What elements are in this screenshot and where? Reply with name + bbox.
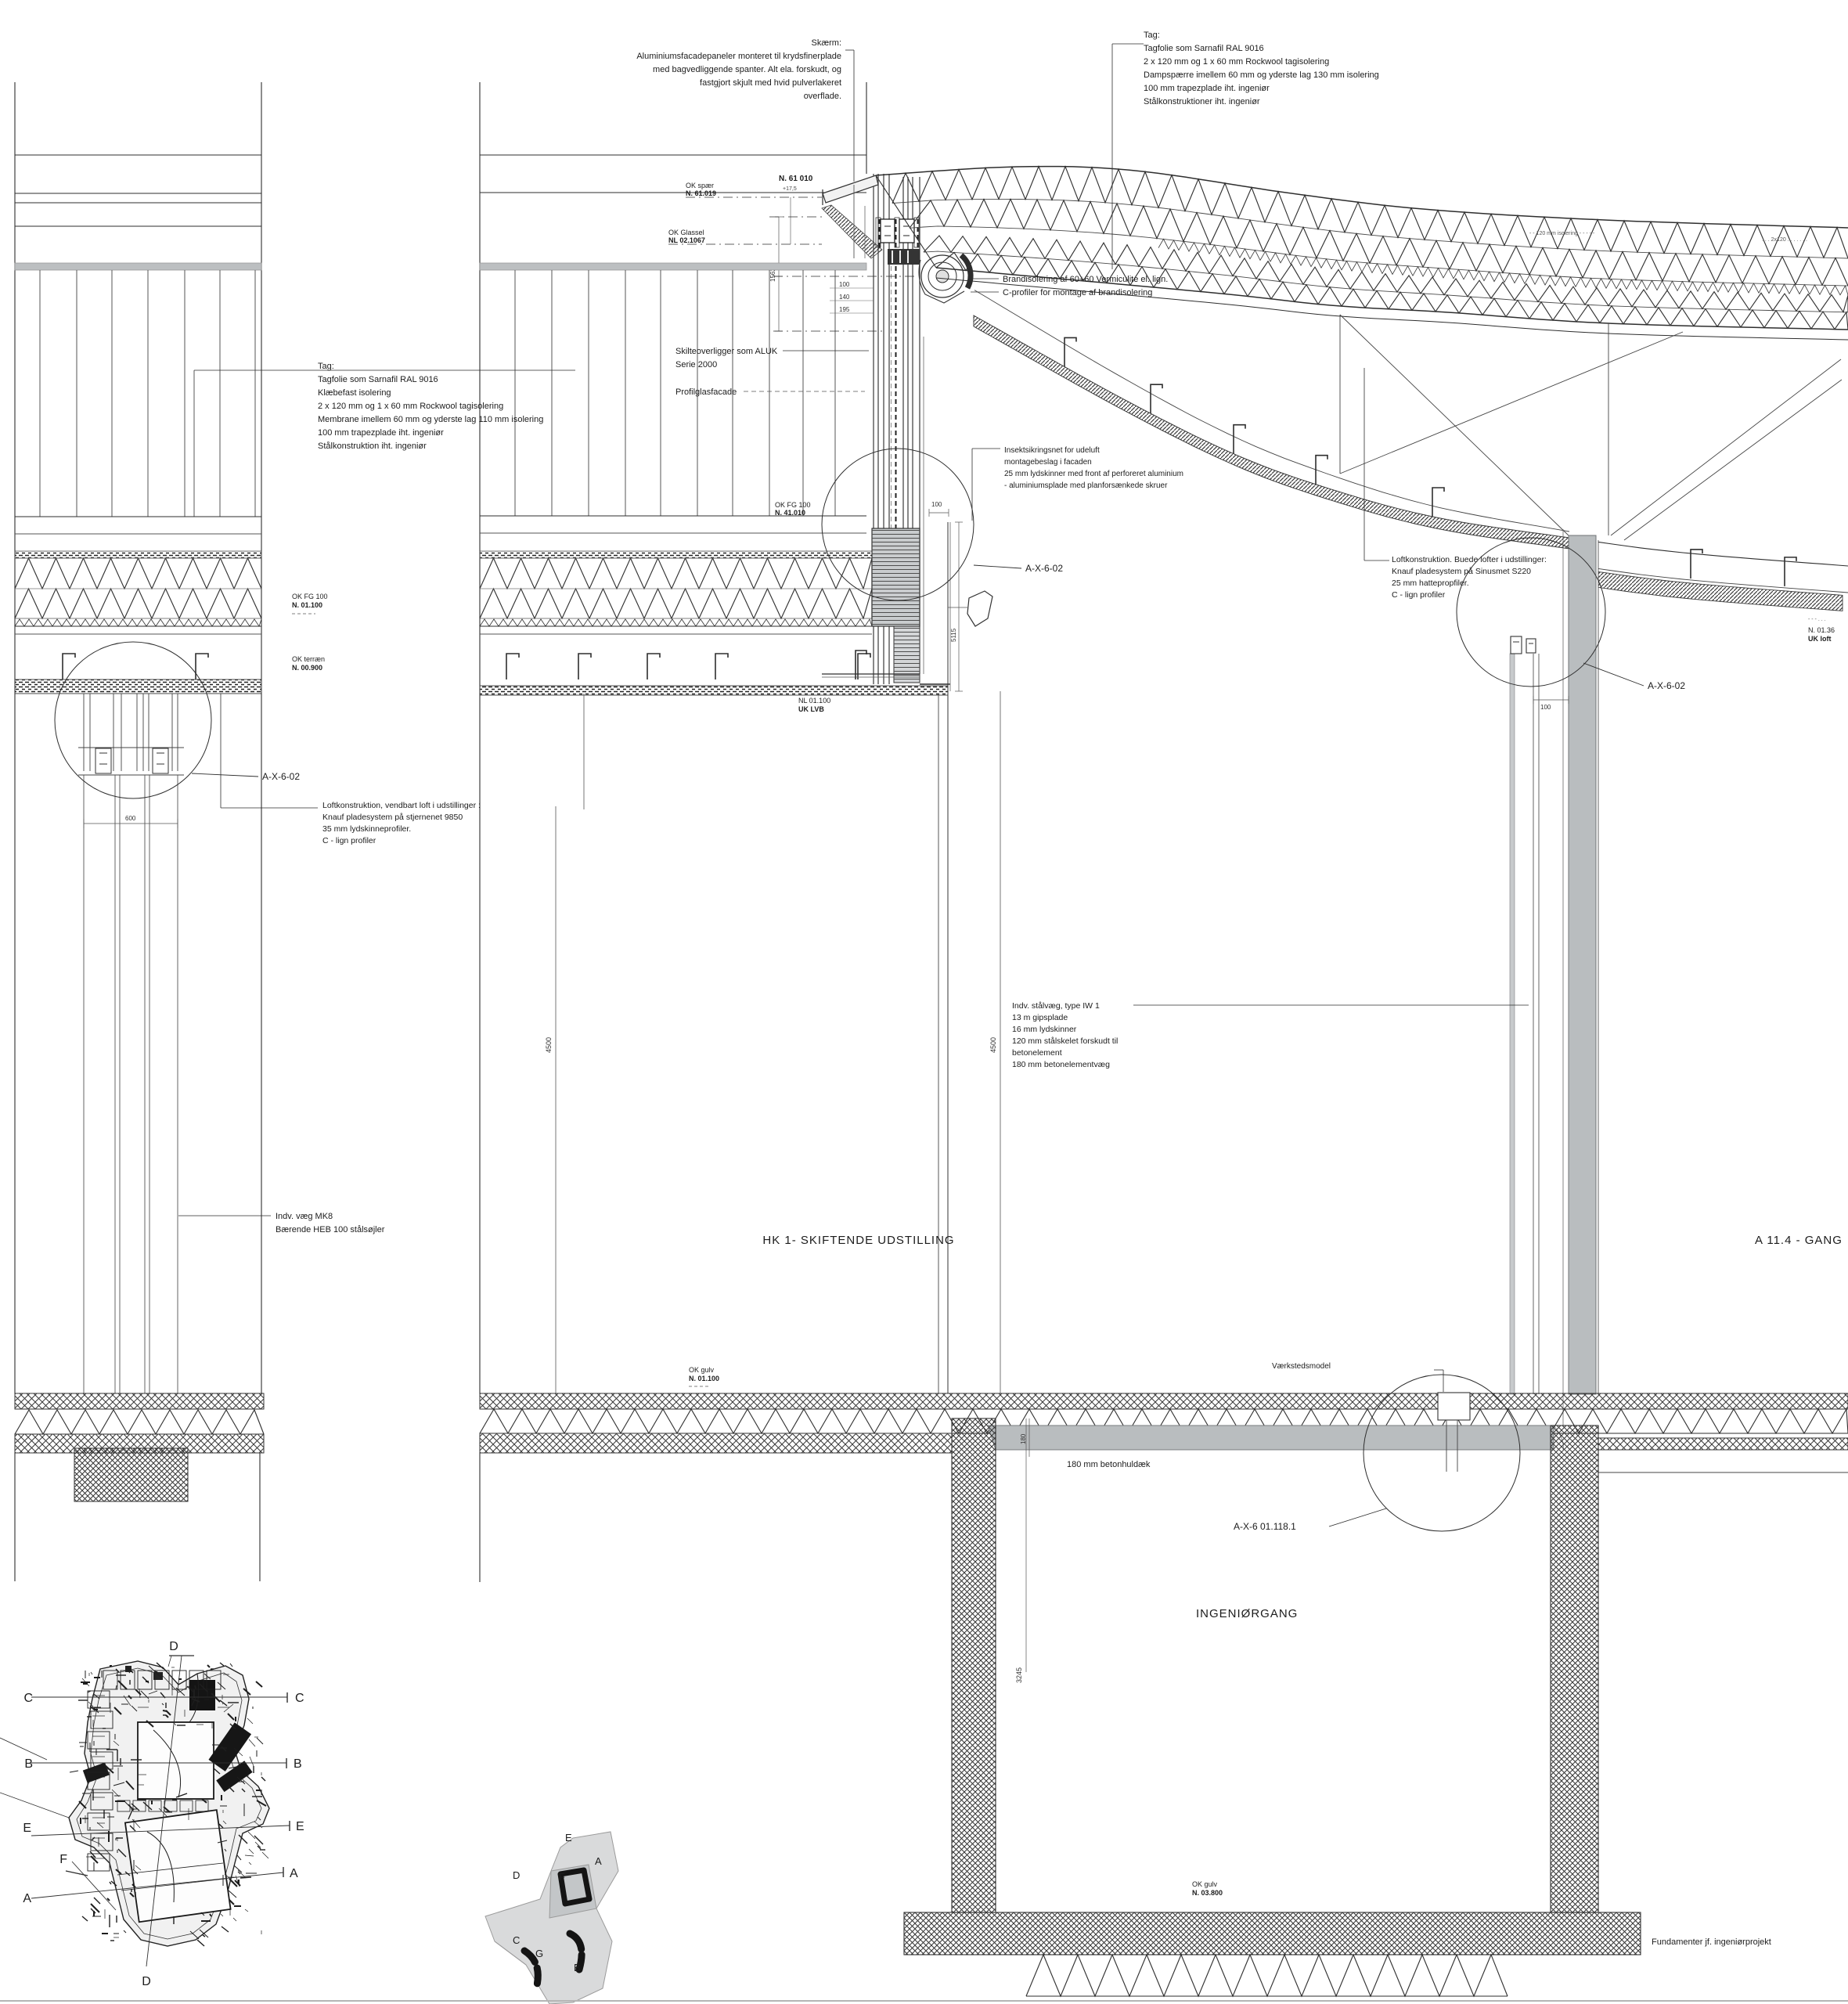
svg-text:F: F — [559, 1871, 565, 1883]
svg-text:INGENIØRGANG: INGENIØRGANG — [1196, 1607, 1298, 1620]
svg-text:D: D — [142, 1975, 151, 1988]
svg-text:D: D — [169, 1640, 178, 1653]
svg-text:Indv. væg MK8: Indv. væg MK8 — [276, 1212, 333, 1221]
svg-text:OK terræn: OK terræn — [292, 655, 325, 663]
svg-text:Fundamenter jf. ingeniørprojek: Fundamenter jf. ingeniørprojekt — [1652, 1937, 1771, 1947]
svg-text:. . . 2x120 . . . . . . .: . . . 2x120 . . . . . . . — [1762, 237, 1807, 243]
svg-text:N. 01.100: N. 01.100 — [689, 1375, 719, 1382]
svg-text:Aluminiumsfacadepaneler monter: Aluminiumsfacadepaneler monteret til kry… — [636, 52, 841, 61]
svg-text:120 mm stålskelet forskudt til: 120 mm stålskelet forskudt til — [1012, 1036, 1118, 1046]
svg-text:195: 195 — [839, 306, 850, 313]
svg-text:Knauf pladesystem på Sinusmet: Knauf pladesystem på Sinusmet S220 — [1392, 567, 1531, 576]
svg-text:600: 600 — [125, 815, 136, 822]
svg-text:25 mm lydskinner med front af: 25 mm lydskinner med front af perforeret… — [1004, 470, 1183, 478]
svg-text:N. 61.019: N. 61.019 — [686, 189, 716, 197]
svg-text:C - lign profiler: C - lign profiler — [1392, 590, 1446, 600]
svg-text:100: 100 — [1540, 704, 1551, 711]
svg-text:UK loft: UK loft — [1808, 635, 1832, 643]
svg-text:overflade.: overflade. — [804, 92, 841, 101]
svg-text:2 x 120 mm og 1 x 60 mm Rockwo: 2 x 120 mm og 1 x 60 mm Rockwool tagisol… — [318, 402, 503, 411]
svg-text:140: 140 — [839, 294, 850, 301]
svg-text:Loftkonstruktion. Buede lofter: Loftkonstruktion. Buede lofter i udstill… — [1392, 555, 1547, 564]
svg-text:100: 100 — [931, 501, 942, 508]
svg-text:C: C — [295, 1692, 304, 1705]
svg-text:+17,5: +17,5 — [783, 186, 797, 192]
svg-text:C: C — [23, 1692, 33, 1705]
svg-text:montagebeslag i facaden: montagebeslag i facaden — [1004, 458, 1092, 467]
svg-text:N. 61 010: N. 61 010 — [779, 175, 813, 183]
svg-text:Tag:: Tag: — [318, 362, 334, 371]
svg-text:100 mm trapezplade iht. ingeni: 100 mm trapezplade iht. ingeniør — [318, 428, 444, 438]
svg-text:180 mm betonelementvæg: 180 mm betonelementvæg — [1012, 1060, 1110, 1069]
svg-text:Tagfolie som Sarnafil RAL 901: Tagfolie som Sarnafil RAL 9016 — [318, 375, 438, 384]
svg-text:B: B — [294, 1757, 302, 1771]
svg-text:Knauf pladesystem på stjernene: Knauf pladesystem på stjernenet 9850 — [322, 813, 463, 822]
svg-text:E: E — [565, 1832, 572, 1844]
svg-text:100 mm trapezplade iht. ingeni: 100 mm trapezplade iht. ingeniør — [1144, 84, 1270, 93]
svg-text:Bærende HEB 100 stålsøjler: Bærende HEB 100 stålsøjler — [276, 1225, 385, 1234]
svg-text:25 mm hattepropfiler.: 25 mm hattepropfiler. — [1392, 578, 1469, 588]
svg-text:OK FG 100: OK FG 100 — [292, 593, 328, 600]
svg-text:med bagvedliggende spanter. Al: med bagvedliggende spanter. Alt ela. for… — [653, 65, 841, 74]
svg-text:Indv. stålvæg, type IW 1: Indv. stålvæg, type IW 1 — [1012, 1001, 1100, 1011]
svg-text:OK FG 100: OK FG 100 — [775, 501, 811, 509]
svg-text:Loftkonstruktion, vendbart lof: Loftkonstruktion, vendbart loft i udstil… — [322, 801, 481, 810]
svg-text:Dampspærre imellem 60 mm og yd: Dampspærre imellem 60 mm og yderste lag … — [1144, 70, 1379, 80]
svg-text:16 mm lydskinner: 16 mm lydskinner — [1012, 1025, 1077, 1034]
svg-text:F: F — [59, 1853, 67, 1866]
svg-text:betonelement: betonelement — [1012, 1048, 1062, 1058]
svg-text:OK gulv: OK gulv — [1192, 1880, 1218, 1888]
svg-text:N. 00.900: N. 00.900 — [292, 664, 322, 672]
svg-text:Skærm:: Skærm: — [812, 38, 842, 48]
svg-text:N. 03.800: N. 03.800 — [1192, 1889, 1223, 1897]
svg-text:NL 02.1067: NL 02.1067 — [668, 236, 705, 244]
svg-text:OK Glassel: OK Glassel — [668, 229, 704, 236]
svg-text:C: C — [513, 1934, 520, 1946]
svg-text:Stålkonstruktioner iht. ingeni: Stålkonstruktioner iht. ingeniør — [1144, 97, 1260, 106]
svg-text:180 mm betonhuldæk: 180 mm betonhuldæk — [1067, 1460, 1151, 1469]
svg-text:100: 100 — [839, 281, 850, 288]
svg-text:5115: 5115 — [950, 628, 957, 642]
svg-text:4500: 4500 — [989, 1037, 997, 1053]
svg-text:N. 01.36: N. 01.36 — [1808, 626, 1835, 634]
svg-text:A-X-6-02: A-X-6-02 — [262, 771, 300, 782]
svg-text:Tag:: Tag: — [1144, 31, 1160, 40]
svg-text:C - lign profiler: C - lign profiler — [322, 836, 376, 845]
svg-text:- - 120 mm isolering - - - - -: - - 120 mm isolering - - - - - — [1529, 231, 1595, 236]
svg-text:N. 01.100: N. 01.100 — [292, 601, 322, 609]
svg-text:Klæbefast isolering: Klæbefast isolering — [318, 388, 391, 398]
svg-text:G: G — [535, 1948, 543, 1959]
svg-text:B: B — [574, 1962, 581, 1973]
svg-text:A: A — [595, 1855, 602, 1867]
svg-text:C-profiler for montage af bran: C-profiler for montage af brandisolering — [1003, 288, 1152, 297]
svg-text:A 11.4 - GANG: A 11.4 - GANG — [1755, 1234, 1843, 1247]
svg-text:Stålkonstruktion iht. ingeniør: Stålkonstruktion iht. ingeniør — [318, 442, 427, 451]
svg-text:A-X-6-02: A-X-6-02 — [1648, 680, 1685, 691]
svg-text:UK LVB: UK LVB — [798, 705, 824, 713]
svg-text:A-X-6-02: A-X-6-02 — [1025, 563, 1063, 574]
svg-text:Brandisolering af 60+60 Vermic: Brandisolering af 60+60 Vermiculite el. … — [1003, 275, 1168, 284]
svg-text:35 mm lydskinneprofiler.: 35 mm lydskinneprofiler. — [322, 824, 411, 834]
svg-text:4500: 4500 — [545, 1037, 553, 1053]
svg-text:A: A — [23, 1892, 31, 1905]
svg-text:Tagfolie som Sarnafil RAL 901: Tagfolie som Sarnafil RAL 9016 — [1144, 44, 1264, 53]
svg-text:A: A — [290, 1867, 298, 1880]
svg-text:Profilglasfacade: Profilglasfacade — [675, 387, 737, 397]
svg-text:OK gulv: OK gulv — [689, 1366, 715, 1374]
svg-text:N. 41.010: N. 41.010 — [775, 509, 805, 517]
svg-text:- - - . . .: - - - . . . — [1808, 617, 1826, 622]
svg-text:E: E — [23, 1822, 31, 1835]
svg-text:NL 01.100: NL 01.100 — [798, 697, 830, 705]
svg-text:Insektsikringsnet for udeluft: Insektsikringsnet for udeluft — [1004, 446, 1100, 455]
svg-text:- aluminiumsplade med planfors: - aluminiumsplade med planforsænkede skr… — [1004, 481, 1168, 490]
svg-text:Serie 2000: Serie 2000 — [675, 360, 717, 369]
svg-text:OK spær: OK spær — [686, 182, 714, 189]
svg-text:HK 1- SKIFTENDE UDSTILLING: HK 1- SKIFTENDE UDSTILLING — [762, 1234, 954, 1247]
svg-text:Skilteoverligger som ALUK: Skilteoverligger som ALUK — [675, 347, 778, 356]
svg-text:A-X-6 01.118.1: A-X-6 01.118.1 — [1234, 1521, 1296, 1532]
svg-text:Membrane imellem 60 mm og yder: Membrane imellem 60 mm og yderste lag 11… — [318, 415, 543, 424]
svg-text:2 x 120 mm og 1 x 60 mm Rockwo: 2 x 120 mm og 1 x 60 mm Rockwool tagisol… — [1144, 57, 1329, 67]
svg-text:13 m gipsplade: 13 m gipsplade — [1012, 1013, 1068, 1022]
svg-text:D: D — [513, 1869, 520, 1881]
svg-text:Værkstedsmodel: Værkstedsmodel — [1272, 1362, 1331, 1371]
svg-text:3245: 3245 — [1015, 1667, 1023, 1683]
svg-text:fastgjort skjult med hvid pulv: fastgjort skjult med hvid pulverlakeret — [700, 78, 841, 88]
svg-text:E: E — [296, 1820, 304, 1833]
svg-text:B: B — [24, 1757, 33, 1771]
